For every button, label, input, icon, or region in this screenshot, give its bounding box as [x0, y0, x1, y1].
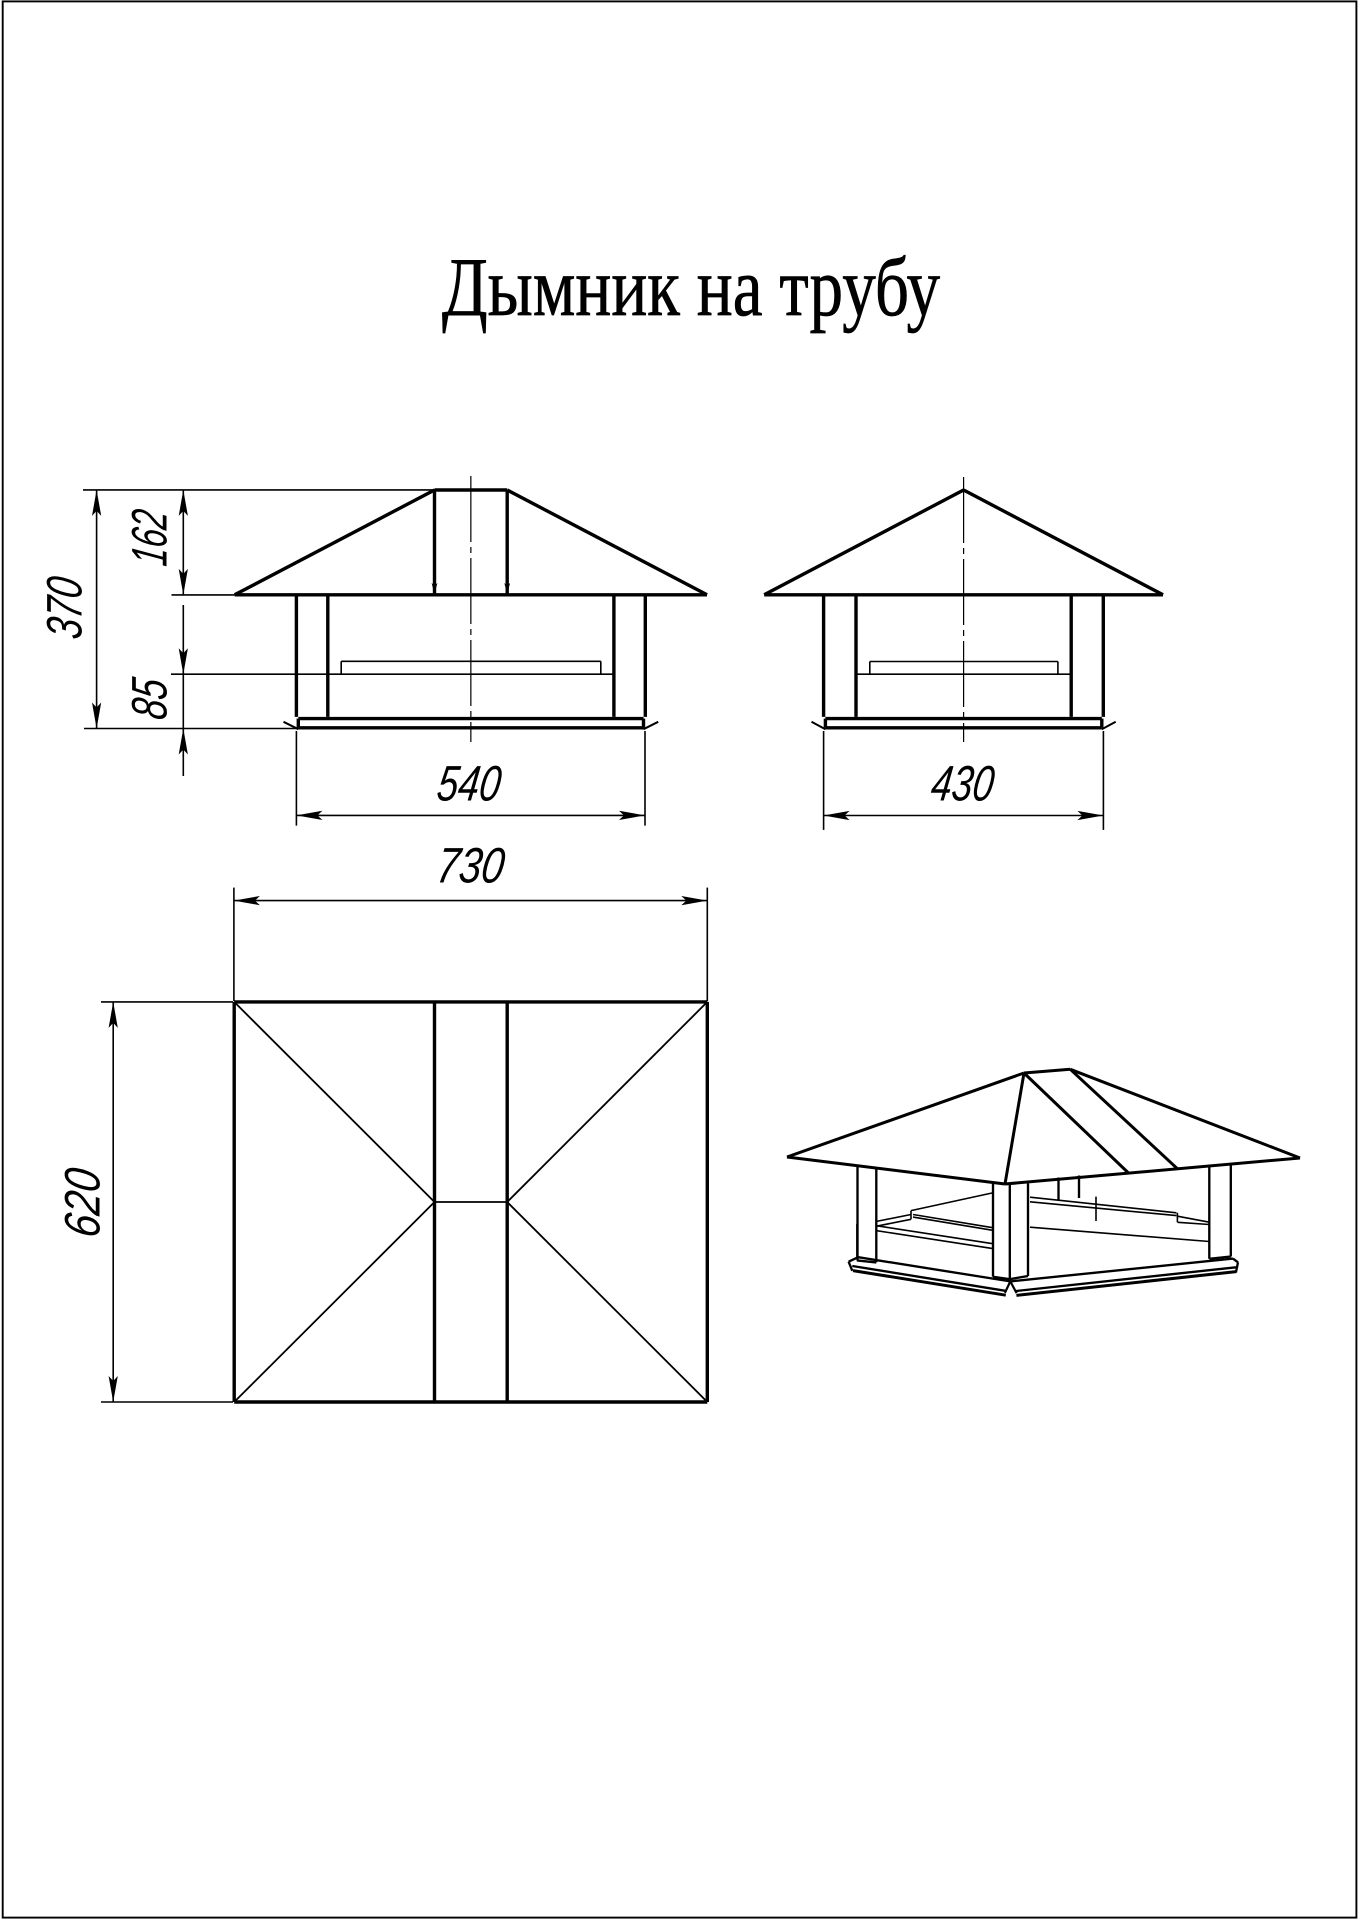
- svg-text:730: 730: [433, 838, 508, 894]
- svg-text:85: 85: [122, 674, 178, 723]
- svg-text:430: 430: [928, 756, 998, 812]
- svg-text:620: 620: [55, 1165, 111, 1241]
- svg-text:370: 370: [37, 573, 93, 642]
- svg-text:162: 162: [122, 506, 178, 569]
- svg-text:540: 540: [434, 756, 505, 812]
